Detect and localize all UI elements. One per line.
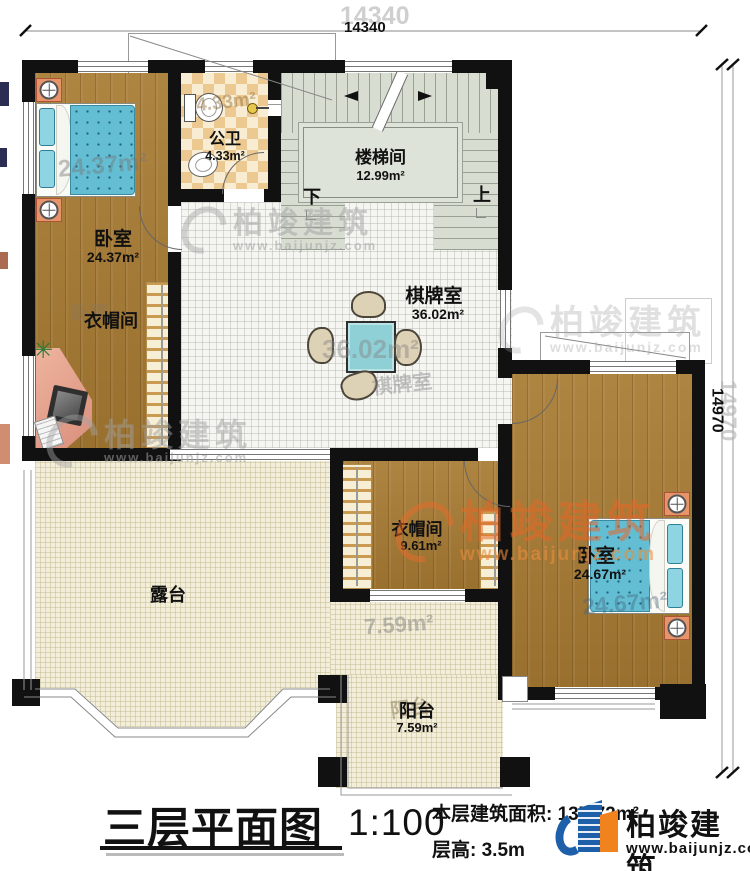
terrace-floor <box>35 461 330 688</box>
wall <box>498 348 512 378</box>
stair-landing: 楼梯间 12.99m² <box>303 127 458 198</box>
wall <box>330 448 478 461</box>
cloakroom-middle-label: 衣帽间 <box>386 521 448 539</box>
stair-tick <box>476 208 486 218</box>
wall <box>264 189 281 202</box>
brand-url: www.baijunjz.com <box>626 840 750 857</box>
plant-icon: ✳ <box>33 336 53 365</box>
cloakroom-middle-area: 9.61m² <box>390 539 452 553</box>
wall <box>676 360 705 374</box>
title-block: 三层平面图 1:100 本层建筑面积: 137.72m² 层高: 3.5m 柏竣… <box>0 790 750 871</box>
floor-height-label: 层高: <box>432 840 476 861</box>
lamp-icon <box>40 201 59 220</box>
stair-down-label: 下 <box>300 188 324 207</box>
balcony-area: 7.59m² <box>388 721 446 735</box>
wardrobe-rail <box>494 513 496 586</box>
stairwell-label: 楼梯间 <box>355 143 406 168</box>
balcony-label: 阳台 <box>396 702 438 721</box>
terrace-label: 露台 <box>148 586 188 605</box>
bedroom-left-label: 卧室 <box>75 230 151 250</box>
title-underline-shadow <box>106 853 344 856</box>
canopy-echo-right <box>625 298 712 364</box>
window <box>23 356 34 436</box>
edge-fragment <box>0 424 10 464</box>
window <box>555 688 655 699</box>
window <box>205 61 253 72</box>
wall <box>168 189 224 202</box>
nightstand <box>36 78 62 102</box>
floor-area-label: 本层建筑面积: <box>432 804 552 825</box>
wall <box>253 60 345 73</box>
pier-outline <box>502 676 528 702</box>
nightstand <box>664 492 690 516</box>
bedroom-left-area: 24.37m² <box>75 250 151 265</box>
stair-tick <box>306 210 316 220</box>
stair-nib-column <box>486 73 502 89</box>
wall <box>148 60 205 73</box>
dim-right-value: 14970 <box>708 380 725 440</box>
floor-height-line: 层高: 3.5m <box>432 835 525 862</box>
wall <box>22 60 35 102</box>
wall <box>330 589 370 602</box>
window <box>500 290 511 348</box>
window <box>345 61 452 72</box>
bedroom-right-label: 卧室 <box>558 547 634 567</box>
brand-name: 柏竣建筑 <box>626 800 750 871</box>
lamp-icon <box>668 619 687 638</box>
echo-balcony-area: 7.59m² <box>363 610 434 641</box>
pillow <box>667 524 683 564</box>
edge-fragment <box>0 148 7 167</box>
pillow <box>667 568 683 608</box>
nightstand <box>664 616 690 640</box>
window <box>370 590 465 601</box>
lamp-icon <box>668 495 687 514</box>
wall <box>268 60 281 100</box>
wall <box>168 252 181 461</box>
column <box>500 757 530 787</box>
echo-game-area: 36.02m² <box>322 334 419 365</box>
title-underline <box>100 846 342 850</box>
monitor-screen <box>53 391 83 421</box>
chair <box>351 291 386 318</box>
logo-building-blue <box>578 800 602 852</box>
wall <box>22 194 35 356</box>
column <box>318 675 347 703</box>
knob-leader-line <box>256 107 269 109</box>
bathroom-label: 公卫 <box>192 132 258 149</box>
stair-up-label: 上 <box>470 186 494 205</box>
brand-logo-icon <box>556 798 620 860</box>
stair-arrow-left-icon <box>344 91 358 101</box>
plan-scale: 1:100 <box>348 802 446 844</box>
game-room-label: 棋牌室 <box>398 287 470 307</box>
terrace-bay-floor <box>75 688 283 727</box>
dim-top-value: 14340 <box>344 20 386 36</box>
window <box>78 61 148 72</box>
wardrobe-rail <box>161 285 163 445</box>
column <box>318 757 347 787</box>
wall <box>330 448 343 602</box>
corner-column <box>660 684 706 719</box>
logo-building-orange <box>600 810 618 852</box>
sliding-door-window <box>170 449 330 460</box>
bathroom-area: 4.33m² <box>192 150 258 163</box>
pillow <box>39 150 55 188</box>
wardrobe-rail <box>356 467 358 586</box>
window <box>23 102 34 194</box>
wall <box>168 73 181 206</box>
floor-plan-canvas: ✳ 楼梯间 12.99m² <box>0 0 750 871</box>
game-room-area: 36.02m² <box>402 307 474 322</box>
floor-height-value: 3.5m <box>482 840 525 861</box>
wall <box>22 436 35 461</box>
cloakroom-left-label: 衣帽间 <box>78 312 144 331</box>
wall <box>465 589 512 602</box>
bedroom-right-area: 24.67m² <box>562 567 638 582</box>
window <box>590 361 676 373</box>
column <box>12 679 40 706</box>
wall <box>498 60 512 290</box>
wall <box>692 374 705 700</box>
edge-fragment <box>0 82 9 106</box>
nightstand <box>36 198 62 222</box>
pillow <box>39 108 55 146</box>
stairwell-area: 12.99m² <box>356 168 404 183</box>
wall <box>35 448 170 461</box>
wall <box>512 360 590 374</box>
edge-fragment <box>0 252 8 269</box>
stair-arrow-right-icon <box>418 91 432 101</box>
lamp-icon <box>40 81 59 100</box>
wardrobe-middle-left <box>342 464 372 589</box>
